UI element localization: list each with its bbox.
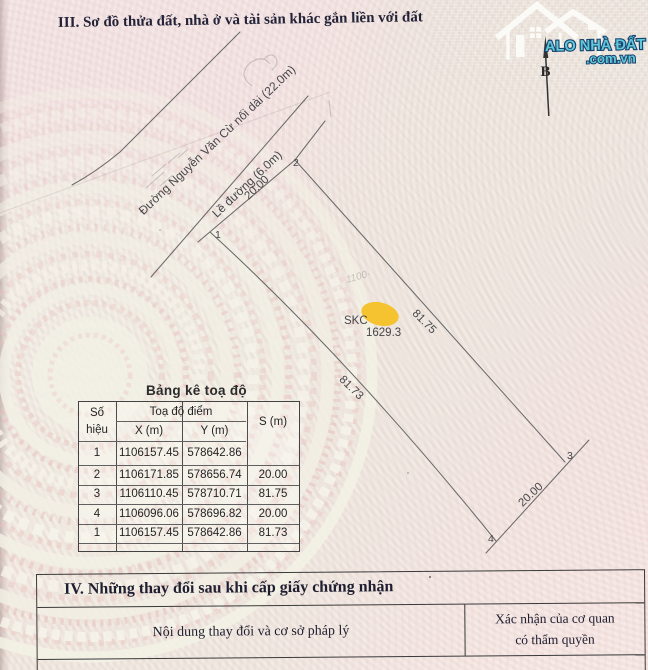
svg-text:.com.vn: .com.vn [586, 50, 636, 66]
svg-text:B: B [541, 64, 551, 80]
